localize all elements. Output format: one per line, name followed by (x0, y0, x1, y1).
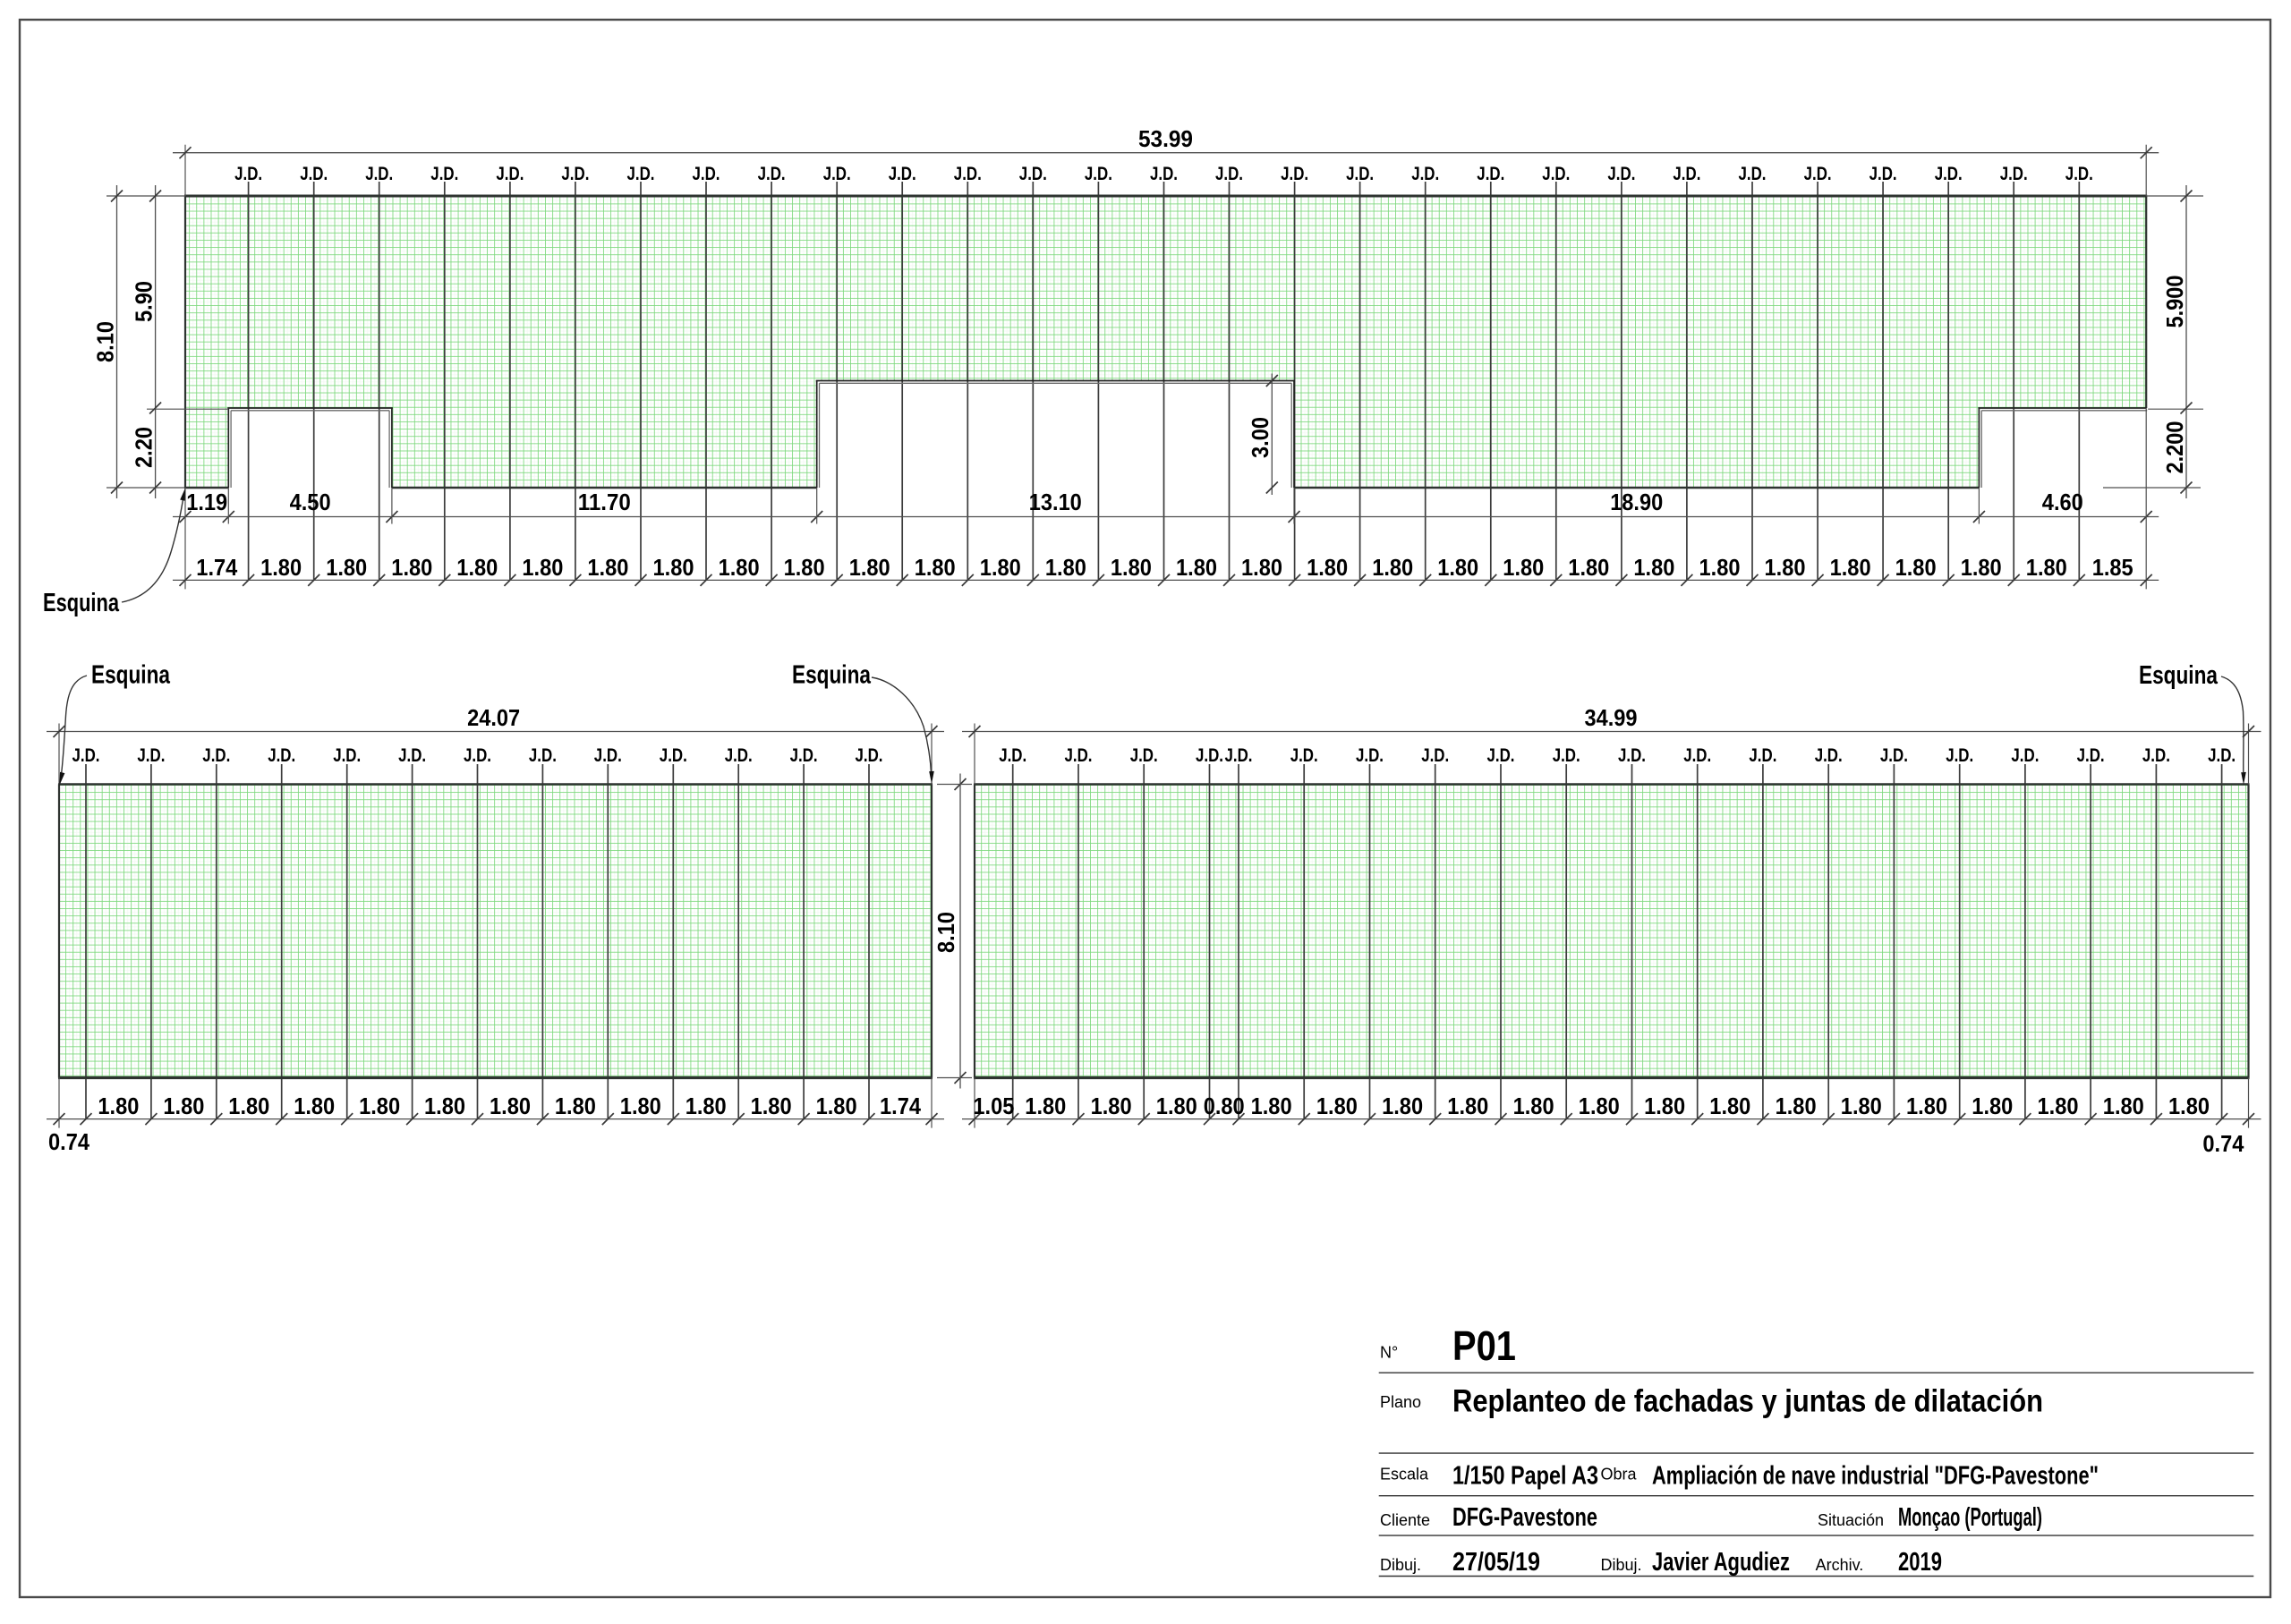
svg-text:Javier Agudiez: Javier Agudiez (1652, 1548, 1790, 1577)
svg-text:J.D.: J.D. (1281, 164, 1308, 184)
svg-text:J.D.: J.D. (1542, 164, 1570, 184)
svg-text:1.80: 1.80 (1503, 554, 1544, 581)
svg-text:1.80: 1.80 (1025, 1093, 1066, 1119)
svg-text:2.200: 2.200 (2161, 421, 2188, 474)
svg-text:J.D.: J.D. (72, 745, 100, 766)
svg-text:1.80: 1.80 (1972, 1093, 2013, 1119)
svg-text:J.D.: J.D. (529, 745, 557, 766)
svg-text:J.D.: J.D. (660, 745, 687, 766)
svg-text:1.80: 1.80 (1437, 554, 1478, 581)
svg-text:J.D.: J.D. (1673, 164, 1700, 184)
svg-text:J.D.: J.D. (1804, 164, 1832, 184)
svg-text:J.D.: J.D. (627, 164, 655, 184)
svg-text:1.80: 1.80 (522, 554, 563, 581)
svg-text:2019: 2019 (1898, 1548, 1942, 1577)
svg-text:J.D.: J.D. (889, 164, 916, 184)
svg-text:J.D.: J.D. (1130, 745, 1158, 766)
svg-text:J.D.: J.D. (1946, 745, 1973, 766)
svg-text:1.80: 1.80 (490, 1093, 531, 1119)
svg-text:1.80: 1.80 (1316, 1093, 1358, 1119)
svg-text:J.D.: J.D. (137, 745, 165, 766)
svg-text:1.80: 1.80 (620, 1093, 661, 1119)
svg-text:1.80: 1.80 (1776, 1093, 1817, 1119)
svg-text:Dibuj.: Dibuj. (1380, 1556, 1421, 1574)
svg-text:1.80: 1.80 (1045, 554, 1086, 581)
svg-text:1.80: 1.80 (1830, 554, 1871, 581)
svg-text:1.80: 1.80 (1906, 1093, 1947, 1119)
svg-text:1.74: 1.74 (196, 554, 237, 581)
svg-text:1.80: 1.80 (555, 1093, 596, 1119)
svg-text:1.80: 1.80 (1156, 1093, 1197, 1119)
svg-text:J.D.: J.D. (1815, 745, 1843, 766)
svg-text:5.90: 5.90 (131, 281, 158, 322)
svg-text:1.80: 1.80 (1111, 554, 1152, 581)
svg-text:Esquina: Esquina (2139, 661, 2219, 690)
svg-text:1.80: 1.80 (1307, 554, 1348, 581)
svg-text:J.D.: J.D. (1553, 745, 1580, 766)
svg-text:1.80: 1.80 (587, 554, 628, 581)
svg-text:DFG-Pavestone: DFG-Pavestone (1452, 1503, 1597, 1532)
svg-text:2.20: 2.20 (131, 427, 158, 468)
svg-text:1.80: 1.80 (228, 1093, 269, 1119)
svg-text:0.74: 0.74 (48, 1128, 89, 1155)
svg-text:13.10: 13.10 (1029, 489, 1082, 515)
svg-text:1.80: 1.80 (1644, 1093, 1685, 1119)
svg-text:4.50: 4.50 (290, 489, 331, 515)
svg-text:8.10: 8.10 (92, 321, 119, 362)
svg-text:Esquina: Esquina (91, 661, 171, 690)
svg-text:1.80: 1.80 (1091, 1093, 1132, 1119)
svg-text:1.80: 1.80 (2103, 1093, 2144, 1119)
svg-text:J.D.: J.D. (2000, 164, 2028, 184)
svg-text:1.80: 1.80 (719, 554, 760, 581)
svg-text:1.80: 1.80 (359, 1093, 400, 1119)
svg-text:J.D.: J.D. (333, 745, 361, 766)
svg-text:1.05: 1.05 (973, 1093, 1014, 1119)
svg-text:J.D.: J.D. (1880, 745, 1908, 766)
svg-text:1.80: 1.80 (1176, 554, 1217, 581)
svg-text:J.D.: J.D. (790, 745, 818, 766)
svg-text:N°: N° (1380, 1344, 1398, 1362)
svg-text:J.D.: J.D. (2208, 745, 2236, 766)
svg-text:J.D.: J.D. (398, 745, 426, 766)
svg-text:1.80: 1.80 (1372, 554, 1413, 581)
svg-text:J.D.: J.D. (1618, 745, 1646, 766)
svg-text:1.80: 1.80 (1382, 1093, 1423, 1119)
svg-text:J.D.: J.D. (1356, 745, 1384, 766)
svg-text:34.99: 34.99 (1585, 704, 1638, 731)
svg-text:J.D.: J.D. (1749, 745, 1776, 766)
svg-text:J.D.: J.D. (1019, 164, 1047, 184)
svg-text:1.80: 1.80 (1709, 1093, 1750, 1119)
svg-text:1/150 Papel A3: 1/150 Papel A3 (1452, 1461, 1598, 1490)
svg-text:J.D.: J.D. (758, 164, 786, 184)
svg-text:1.80: 1.80 (1513, 1093, 1554, 1119)
svg-text:1.80: 1.80 (849, 554, 890, 581)
svg-text:11.70: 11.70 (578, 489, 631, 515)
svg-text:J.D.: J.D. (234, 164, 262, 184)
svg-text:Obra: Obra (1601, 1466, 1638, 1484)
svg-text:1.80: 1.80 (1568, 554, 1609, 581)
svg-text:J.D.: J.D. (823, 164, 851, 184)
svg-text:1.80: 1.80 (294, 1093, 335, 1119)
svg-text:J.D.: J.D. (430, 164, 458, 184)
svg-text:1.80: 1.80 (915, 554, 956, 581)
svg-text:J.D.: J.D. (1215, 164, 1243, 184)
svg-text:J.D.: J.D. (1196, 745, 1223, 766)
svg-text:J.D.: J.D. (594, 745, 622, 766)
svg-text:53.99: 53.99 (1138, 125, 1193, 152)
svg-text:J.D.: J.D. (365, 164, 393, 184)
svg-text:1.85: 1.85 (2092, 554, 2133, 581)
svg-text:1.80: 1.80 (751, 1093, 792, 1119)
svg-text:Esquina: Esquina (43, 589, 120, 617)
svg-text:J.D.: J.D. (954, 164, 982, 184)
svg-text:1.80: 1.80 (391, 554, 432, 581)
svg-text:1.19: 1.19 (186, 489, 227, 515)
svg-text:J.D.: J.D. (856, 745, 883, 766)
svg-text:J.D.: J.D. (2077, 745, 2105, 766)
svg-text:1.74: 1.74 (880, 1093, 921, 1119)
svg-text:Replanteo de fachadas y juntas: Replanteo de fachadas y juntas de dilata… (1452, 1384, 2043, 1419)
svg-text:1.80: 1.80 (1699, 554, 1741, 581)
svg-text:4.60: 4.60 (2042, 489, 2083, 515)
svg-text:Monçao (Portugal): Monçao (Portugal) (1898, 1503, 2042, 1532)
svg-text:0.74: 0.74 (2202, 1130, 2244, 1157)
svg-text:1.80: 1.80 (1579, 1093, 1620, 1119)
svg-text:Cliente: Cliente (1380, 1511, 1430, 1529)
svg-text:J.D.: J.D. (1421, 745, 1449, 766)
svg-text:1.80: 1.80 (1251, 1093, 1292, 1119)
svg-text:Situación: Situación (1818, 1511, 1884, 1529)
svg-text:J.D.: J.D. (1290, 745, 1318, 766)
svg-text:J.D.: J.D. (1477, 164, 1504, 184)
svg-text:J.D.: J.D. (1225, 745, 1253, 766)
svg-text:J.D.: J.D. (1935, 164, 1963, 184)
svg-text:1.80: 1.80 (686, 1093, 727, 1119)
svg-text:J.D.: J.D. (268, 745, 295, 766)
svg-text:J.D.: J.D. (693, 164, 720, 184)
svg-text:J.D.: J.D. (1487, 745, 1515, 766)
svg-text:Ampliación de nave industrial: Ampliación de nave industrial "DFG-Paves… (1652, 1461, 2099, 1490)
svg-text:P01: P01 (1452, 1322, 1516, 1369)
svg-text:1.80: 1.80 (98, 1093, 139, 1119)
svg-text:1.80: 1.80 (260, 554, 302, 581)
svg-text:J.D.: J.D. (496, 164, 524, 184)
svg-text:1.80: 1.80 (2026, 554, 2067, 581)
svg-text:1.80: 1.80 (456, 554, 498, 581)
svg-text:1.80: 1.80 (1241, 554, 1282, 581)
svg-text:27/05/19: 27/05/19 (1452, 1548, 1540, 1577)
svg-text:1.80: 1.80 (1961, 554, 2002, 581)
svg-text:J.D.: J.D. (1150, 164, 1178, 184)
svg-text:1.80: 1.80 (1841, 1093, 1882, 1119)
svg-text:J.D.: J.D. (2011, 745, 2039, 766)
svg-text:1.80: 1.80 (424, 1093, 465, 1119)
svg-text:1.80: 1.80 (653, 554, 694, 581)
svg-text:J.D.: J.D. (1683, 745, 1711, 766)
svg-text:Archiv.: Archiv. (1816, 1556, 1864, 1574)
svg-text:1.80: 1.80 (980, 554, 1021, 581)
svg-text:J.D.: J.D. (1411, 164, 1439, 184)
svg-text:3.00: 3.00 (1247, 417, 1273, 458)
svg-text:J.D.: J.D. (1739, 164, 1767, 184)
svg-text:J.D.: J.D. (202, 745, 230, 766)
svg-text:J.D.: J.D. (1085, 164, 1112, 184)
svg-text:24.07: 24.07 (467, 704, 520, 731)
svg-text:J.D.: J.D. (1065, 745, 1093, 766)
svg-text:1.80: 1.80 (784, 554, 825, 581)
svg-text:Dibuj.: Dibuj. (1601, 1556, 1642, 1574)
svg-text:1.80: 1.80 (2038, 1093, 2079, 1119)
svg-text:J.D.: J.D. (1607, 164, 1635, 184)
svg-text:1.80: 1.80 (1895, 554, 1937, 581)
svg-text:Escala: Escala (1380, 1466, 1429, 1484)
svg-text:J.D.: J.D. (725, 745, 753, 766)
svg-text:J.D.: J.D. (999, 745, 1026, 766)
svg-text:1.80: 1.80 (1447, 1093, 1488, 1119)
svg-text:1.80: 1.80 (163, 1093, 204, 1119)
svg-text:8.10: 8.10 (933, 912, 959, 953)
svg-text:J.D.: J.D. (2142, 745, 2170, 766)
svg-text:J.D.: J.D. (1869, 164, 1897, 184)
svg-text:J.D.: J.D. (561, 164, 589, 184)
svg-text:18.90: 18.90 (1610, 489, 1663, 515)
svg-text:J.D.: J.D. (1346, 164, 1374, 184)
svg-text:1.80: 1.80 (1633, 554, 1674, 581)
svg-text:Plano: Plano (1380, 1393, 1421, 1411)
svg-text:1.80: 1.80 (816, 1093, 857, 1119)
svg-text:J.D.: J.D. (2065, 164, 2093, 184)
svg-text:1.80: 1.80 (2168, 1093, 2210, 1119)
svg-text:Esquina: Esquina (792, 661, 872, 690)
svg-text:5.900: 5.900 (2161, 276, 2188, 328)
svg-text:1.80: 1.80 (1765, 554, 1806, 581)
svg-text:0.80: 0.80 (1204, 1093, 1245, 1119)
svg-text:J.D.: J.D. (464, 745, 491, 766)
svg-text:1.80: 1.80 (326, 554, 367, 581)
svg-text:J.D.: J.D. (300, 164, 328, 184)
